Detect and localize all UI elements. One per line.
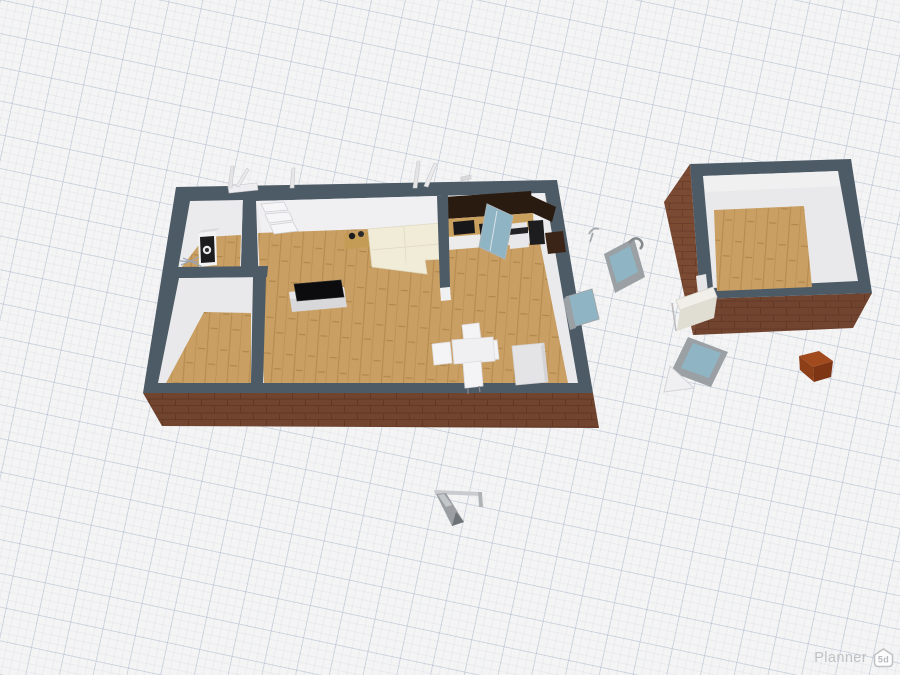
dining-table (452, 337, 495, 364)
tv[interactable] (294, 280, 344, 301)
watermark-label: Planner (814, 650, 867, 666)
house-brick-shade (143, 393, 599, 428)
watermark-badge-text: 5d (878, 655, 889, 665)
dining-chair (463, 361, 483, 388)
canvas-3d-view[interactable]: Planner 5d (0, 0, 900, 675)
annex-leaning-glass-door[interactable] (664, 337, 728, 392)
decor-item (349, 233, 355, 239)
small-object[interactable] (589, 229, 599, 242)
annex-brick-shade (693, 293, 872, 335)
kitchen-sink[interactable] (453, 220, 475, 235)
corner-object[interactable] (434, 490, 483, 526)
annex-room[interactable] (664, 159, 872, 392)
door-jamb (440, 287, 451, 301)
floorplan-3d-scene (0, 0, 900, 675)
kitchen-cabinet-tall[interactable] (528, 220, 545, 245)
main-house[interactable] (143, 161, 599, 428)
dining-chair (432, 342, 452, 365)
floating-door[interactable] (604, 238, 645, 293)
watermark: Planner 5d (814, 647, 895, 669)
wooden-crate[interactable] (799, 351, 833, 382)
planner-5d-badge-icon: 5d (872, 647, 895, 669)
decor-item (358, 231, 364, 237)
partition-wall[interactable] (176, 266, 268, 278)
annex-floor (714, 206, 812, 291)
kitchen-fridge[interactable] (545, 231, 566, 254)
desk[interactable] (512, 343, 548, 385)
side-cabinet[interactable] (344, 231, 370, 249)
room-living[interactable] (256, 191, 578, 394)
